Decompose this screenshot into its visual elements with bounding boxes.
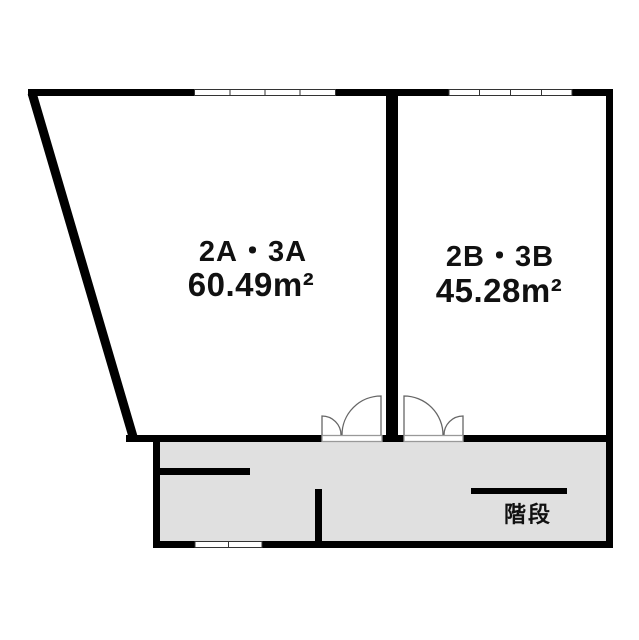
wall-left-slanted: [32, 93, 134, 440]
door-room-a: [322, 396, 382, 442]
wall-room-bottom-left: [126, 435, 322, 442]
stairs-label: 階段: [504, 502, 552, 527]
room-a-area: 60.49m²: [188, 266, 314, 303]
wall-corridor-left: [153, 435, 160, 548]
door-threshold: [404, 436, 463, 442]
door-swing-large: [342, 396, 381, 435]
door-swing-large: [404, 396, 443, 435]
floor-plan: 2A・3A 60.49m² 2B・3B 45.28m² 階段: [0, 0, 639, 640]
wall-room-bottom-right: [463, 435, 606, 442]
window-room-a-top: [195, 90, 336, 96]
room-b-name: 2B・3B: [446, 241, 554, 273]
wall-partition: [386, 89, 398, 439]
door-swing-small: [322, 416, 341, 435]
room-b-area: 45.28m²: [436, 272, 562, 309]
door-swing-small: [444, 416, 463, 435]
floor-plan-drawing: 2A・3A 60.49m² 2B・3B 45.28m² 階段: [0, 0, 639, 640]
wall-right: [606, 89, 613, 548]
window-corridor-bottom: [195, 542, 262, 548]
door-room-b: [404, 396, 463, 442]
window-room-b-top: [449, 90, 572, 96]
wall-corridor-stub-horizontal: [153, 468, 250, 475]
stairs-bar: [471, 488, 567, 494]
wall-corridor-stub-vertical: [315, 489, 322, 548]
room-a-name: 2A・3A: [199, 236, 307, 268]
door-threshold: [322, 436, 382, 442]
